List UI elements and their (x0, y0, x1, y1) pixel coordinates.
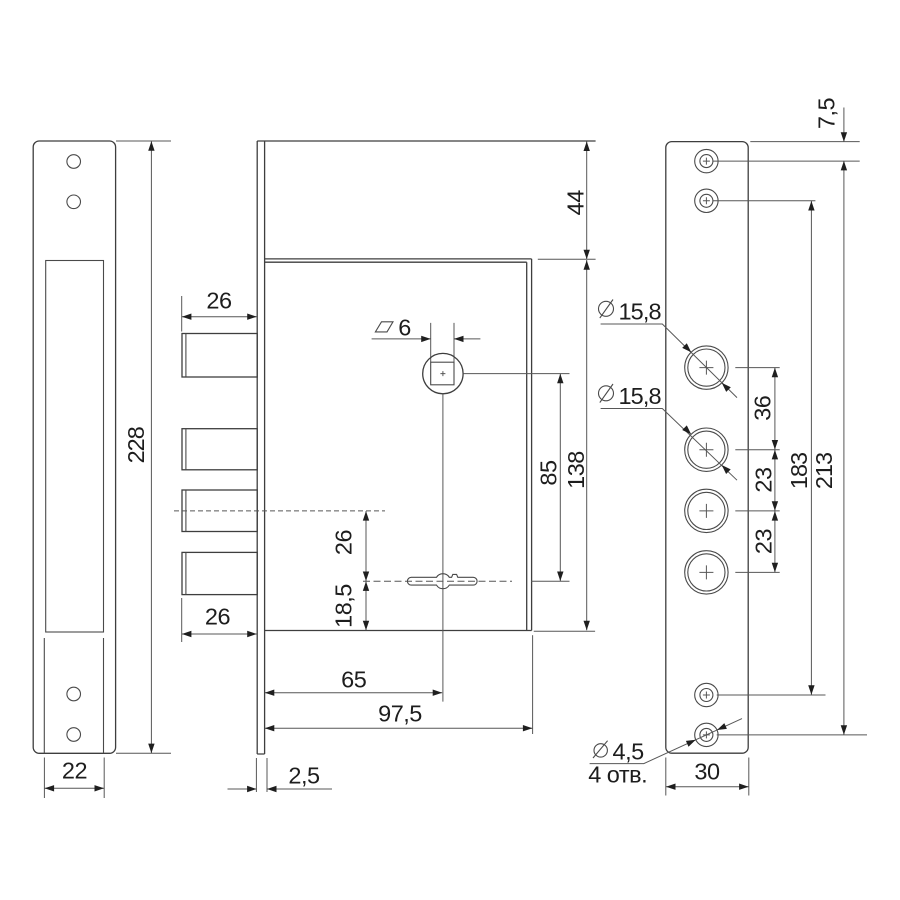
svg-text:85: 85 (535, 460, 561, 486)
svg-text:26: 26 (330, 530, 356, 556)
svg-text:26: 26 (205, 604, 231, 630)
svg-text:23: 23 (750, 529, 776, 555)
svg-text:7,5: 7,5 (813, 97, 839, 129)
svg-text:15,8: 15,8 (619, 383, 662, 409)
svg-text:97,5: 97,5 (378, 701, 422, 727)
svg-text:183: 183 (786, 452, 812, 489)
svg-text:36: 36 (749, 395, 775, 421)
svg-text:4 отв.: 4 отв. (588, 762, 647, 788)
svg-text:2,5: 2,5 (288, 763, 320, 789)
svg-text:23: 23 (750, 467, 776, 493)
svg-text:138: 138 (563, 451, 589, 489)
svg-text:65: 65 (341, 667, 367, 693)
svg-text:44: 44 (562, 190, 588, 216)
svg-text:213: 213 (811, 452, 837, 489)
svg-text:6: 6 (398, 315, 411, 341)
svg-text:228: 228 (123, 426, 149, 463)
svg-text:18,5: 18,5 (330, 584, 356, 628)
svg-text:15,8: 15,8 (619, 299, 662, 325)
svg-text:30: 30 (694, 758, 720, 784)
svg-text:26: 26 (206, 287, 232, 313)
svg-text:22: 22 (62, 758, 87, 784)
